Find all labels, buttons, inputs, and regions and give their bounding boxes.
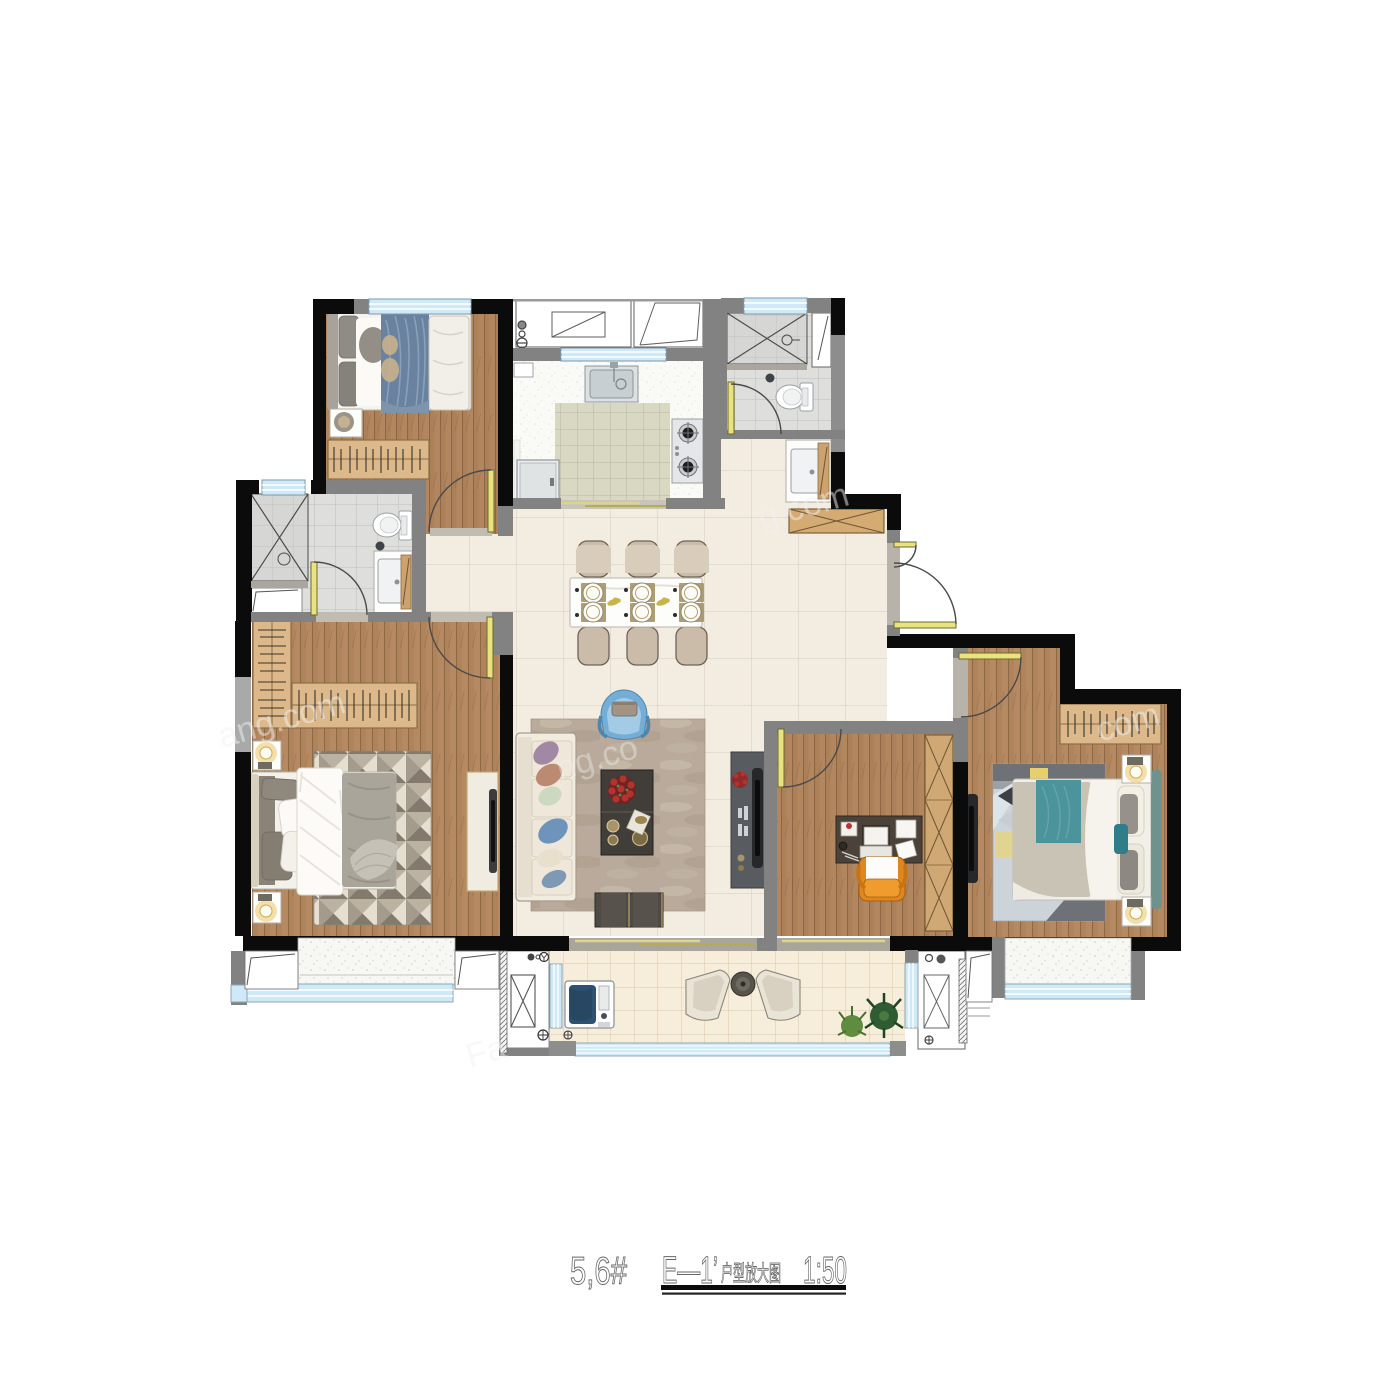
svg-text:户型放大图: 户型放大图 xyxy=(721,1261,781,1286)
svg-text:5,6#: 5,6# xyxy=(570,1250,627,1293)
